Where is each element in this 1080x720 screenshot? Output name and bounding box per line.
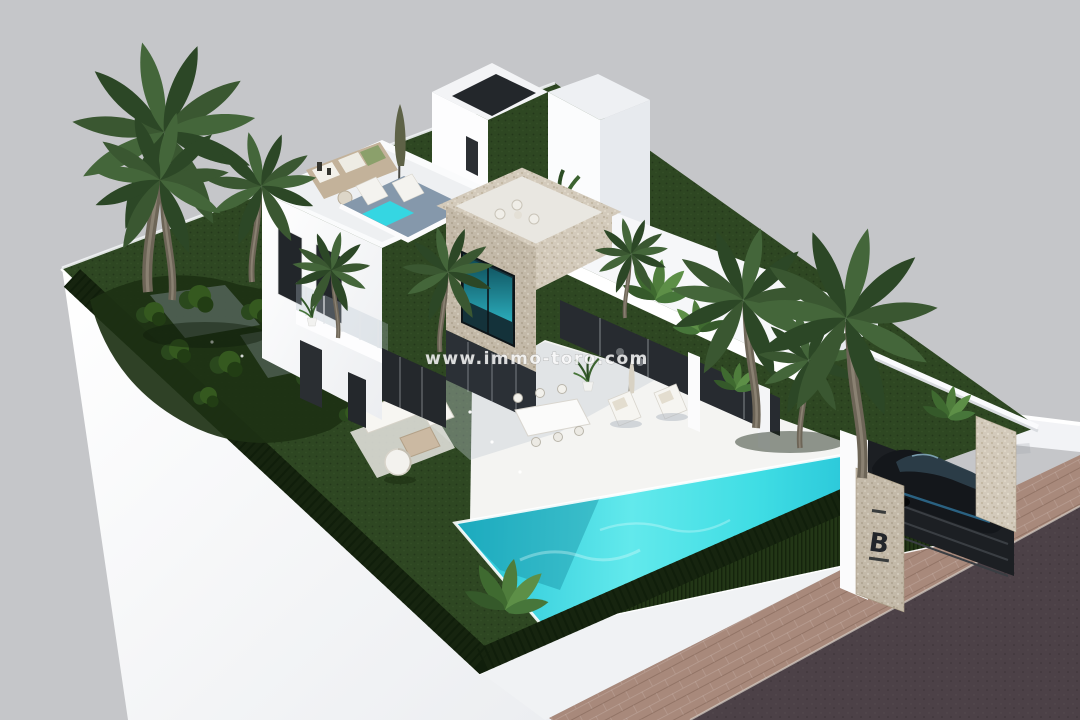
lantern [327,168,331,175]
garden-spotlight [490,440,493,443]
entry-door [348,372,366,428]
furniture-shadow [384,476,416,484]
garden-spotlight [468,410,471,413]
dining-chair [536,389,545,398]
lounger-shadow [610,420,642,428]
villa-render: B www.immo-toro.com [0,0,1080,720]
window [300,340,322,408]
sign-letter: B [867,528,891,560]
lounger-shadow [656,413,688,421]
entrance-sign-pillar: B [856,468,904,612]
roof-chair [495,209,505,219]
roof-table [514,211,522,219]
dining-chair [532,438,541,447]
roof-chair [529,214,539,224]
render-canvas: B www.immo-toro.com [0,0,1080,720]
flower-dot [241,355,244,358]
garden-spotlight [518,470,521,473]
terrace-column [688,352,700,432]
palm-shadow [735,431,845,453]
dining-chair [558,385,567,394]
roof-chair [512,200,522,210]
watermark-text: www.immo-toro.com [425,349,649,369]
dining-chair [514,394,523,403]
dining-chair [575,427,584,436]
dining-chair [554,433,563,442]
stone-pillar-rear [976,416,1016,532]
palm-shadow [143,322,267,348]
bulkhead-door [466,136,478,176]
lantern [317,162,322,171]
